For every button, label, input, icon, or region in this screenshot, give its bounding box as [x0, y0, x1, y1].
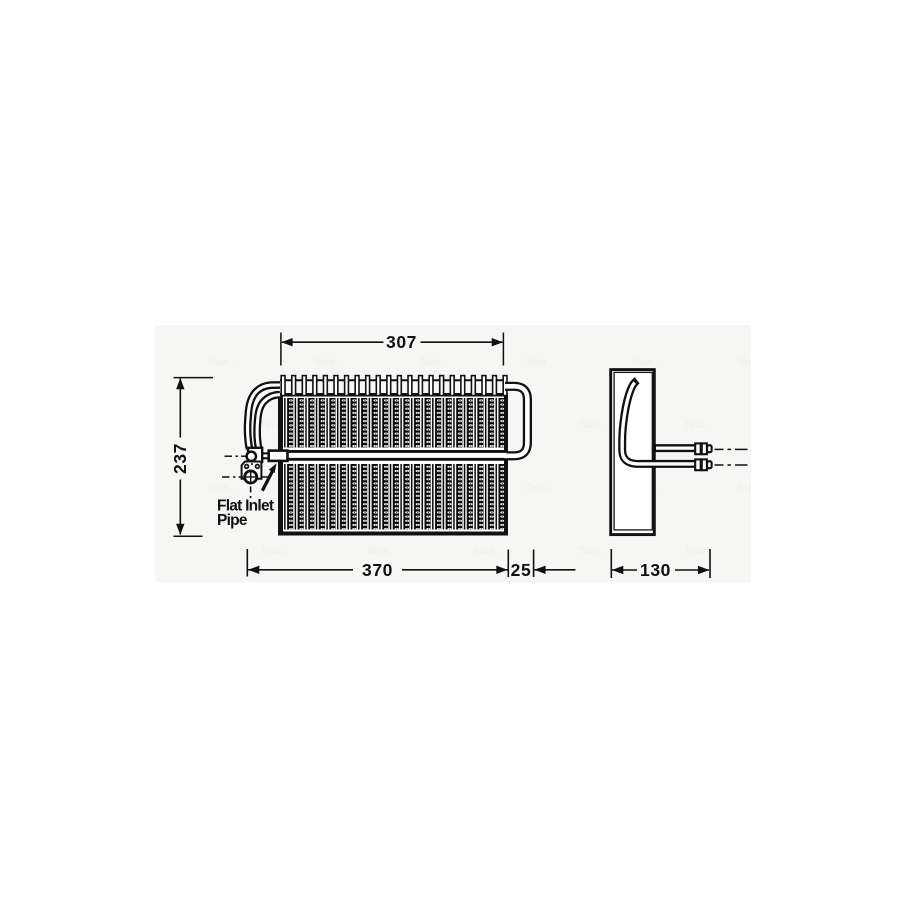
- svg-text:Tava...: Tava...: [578, 420, 608, 431]
- svg-text:Tava...: Tava...: [578, 546, 608, 557]
- svg-text:Tava...: Tava...: [366, 546, 396, 557]
- svg-text:Tava...: Tava...: [631, 357, 661, 368]
- svg-text:370: 370: [362, 560, 393, 580]
- svg-text:25: 25: [511, 560, 532, 580]
- svg-text:Tava...: Tava...: [525, 483, 555, 494]
- svg-text:Tava...: Tava...: [737, 483, 767, 494]
- svg-text:Pipe: Pipe: [217, 512, 248, 529]
- svg-text:Tava...: Tava...: [313, 357, 343, 368]
- svg-text:Tava...: Tava...: [737, 357, 767, 368]
- svg-text:237: 237: [170, 443, 190, 474]
- svg-text:Tava...: Tava...: [472, 546, 502, 557]
- svg-text:307: 307: [386, 332, 417, 352]
- svg-text:Tava...: Tava...: [207, 357, 237, 368]
- svg-text:Tava...: Tava...: [419, 357, 449, 368]
- svg-text:Tava...: Tava...: [207, 483, 237, 494]
- svg-text:Tava...: Tava...: [260, 546, 290, 557]
- svg-text:Tava...: Tava...: [525, 357, 555, 368]
- svg-text:Tava...: Tava...: [684, 420, 714, 431]
- svg-text:130: 130: [640, 560, 671, 580]
